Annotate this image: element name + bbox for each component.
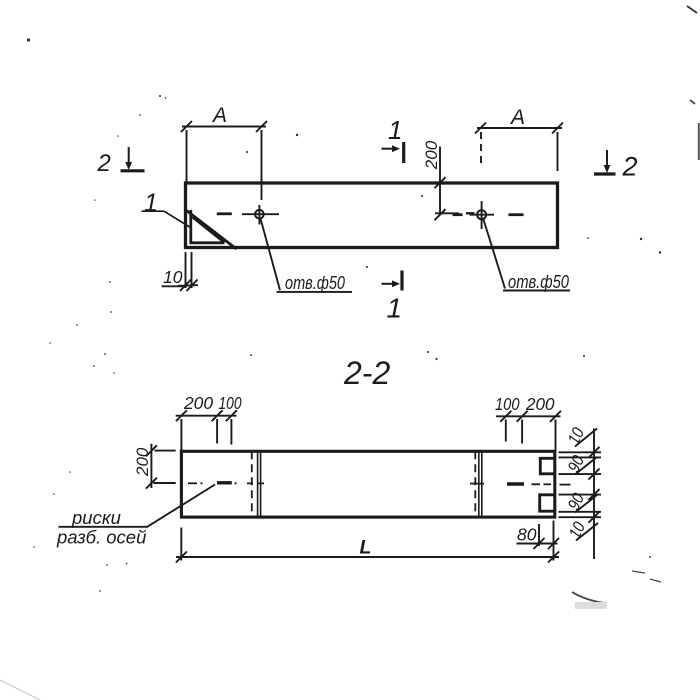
svg-text:отв.ф50: отв.ф50 [285,272,346,293]
svg-text:200: 200 [525,394,555,414]
svg-text:А: А [509,106,525,129]
svg-text:разб. осей: разб. осей [56,527,146,548]
svg-text:200: 200 [133,447,152,477]
svg-text:А: А [211,104,227,127]
svg-text:2: 2 [622,152,638,182]
svg-text:риски: риски [71,507,121,528]
svg-text:1: 1 [388,115,402,145]
svg-text:100: 100 [219,393,242,413]
svg-text:80: 80 [517,525,537,545]
svg-text:L: L [360,537,372,559]
svg-text:2: 2 [97,150,111,177]
svg-text:2-2: 2-2 [343,355,390,391]
svg-text:отв.ф50: отв.ф50 [508,271,570,292]
svg-text:100: 100 [495,394,520,414]
svg-text:200: 200 [422,140,441,170]
svg-text:10: 10 [163,267,183,287]
svg-text:1: 1 [387,293,403,324]
svg-text:1: 1 [144,189,158,217]
svg-text:200: 200 [183,393,213,413]
